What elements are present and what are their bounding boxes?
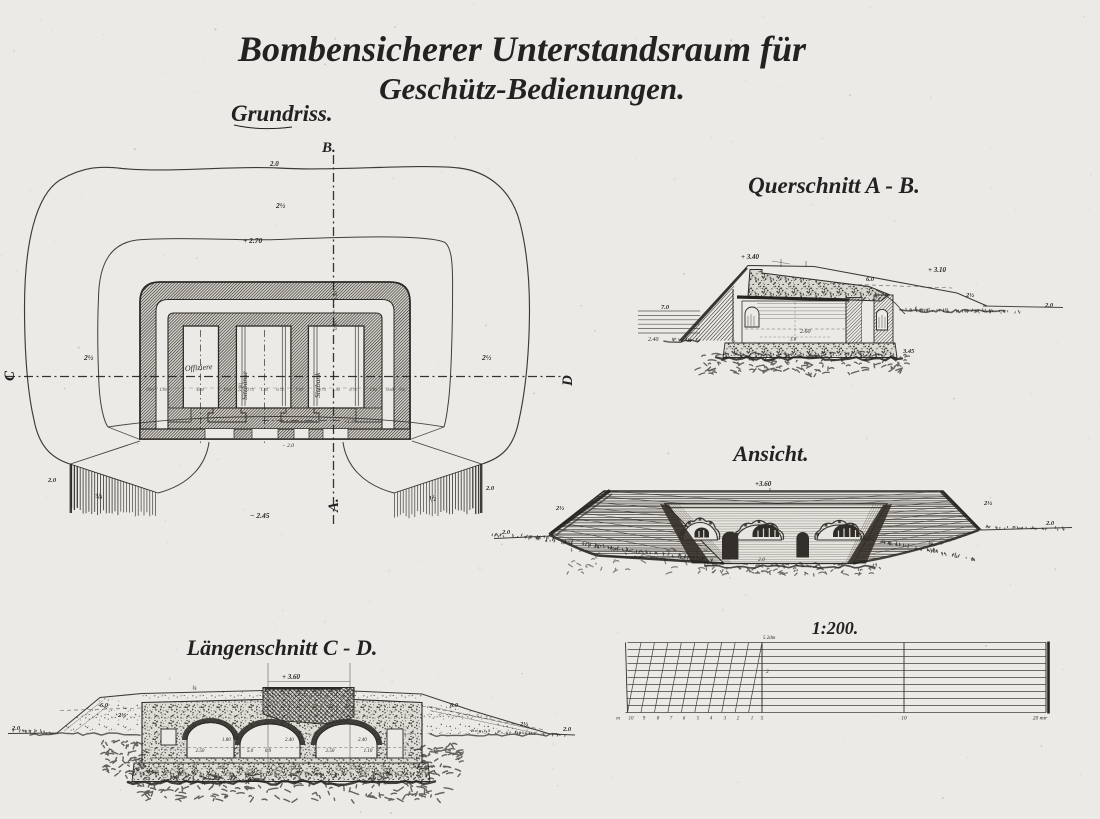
svg-text:1.30: 1.30 [332, 387, 340, 392]
svg-text:2.0: 2.0 [562, 726, 572, 733]
svg-text:2½: 2½ [983, 500, 992, 507]
svg-text:3.0: 3.0 [790, 338, 797, 343]
svg-text:6.0: 6.0 [100, 702, 109, 709]
svg-text:Grundriss.: Grundriss. [231, 101, 333, 126]
svg-text:0.75: 0.75 [246, 387, 253, 392]
svg-text:10: 10 [901, 716, 907, 722]
svg-text:6.0: 6.0 [866, 276, 875, 283]
svg-text:− 2.0: − 2.0 [282, 443, 294, 449]
svg-text:1.50: 1.50 [223, 387, 231, 392]
svg-text:4.00: 4.00 [196, 387, 204, 392]
svg-text:0.6: 0.6 [399, 387, 405, 392]
svg-text:+3.60: +3.60 [755, 480, 772, 488]
svg-text:¾: ¾ [192, 686, 197, 692]
svg-text:2.40: 2.40 [648, 336, 659, 343]
svg-text:0.60: 0.60 [146, 387, 154, 392]
svg-text:2½: 2½ [83, 353, 94, 362]
svg-text:5 2dm: 5 2dm [763, 636, 776, 641]
svg-text:2.40: 2.40 [358, 738, 367, 743]
svg-text:3.00: 3.00 [239, 383, 244, 392]
svg-text:7.0: 7.0 [661, 304, 670, 311]
svg-text:1.30: 1.30 [260, 387, 268, 392]
svg-text:+ 2.70: + 2.70 [243, 236, 263, 245]
svg-text:+1.35: +1.35 [344, 420, 357, 425]
svg-text:Bombensicherer Unterstandsraum: Bombensicherer Unterstandsraum für [237, 29, 807, 69]
svg-text:Geschütz-Bedienungen.: Geschütz-Bedienungen. [379, 71, 685, 106]
svg-text:20 mtr: 20 mtr [1033, 716, 1048, 722]
svg-text:0.60: 0.60 [386, 387, 394, 392]
svg-text:1.80: 1.80 [222, 738, 231, 743]
svg-text:¾: ¾ [928, 540, 933, 547]
svg-text:1.50: 1.50 [159, 387, 167, 392]
svg-text:0.75: 0.75 [276, 387, 283, 392]
svg-text:Ansicht.: Ansicht. [731, 441, 808, 466]
svg-text:m: m [616, 717, 620, 722]
svg-text:2.40: 2.40 [285, 738, 294, 743]
svg-text:1.20: 1.20 [334, 291, 339, 300]
svg-text:2½: 2½ [519, 721, 528, 728]
svg-text:2.0: 2.0 [485, 485, 495, 492]
svg-text:2½: 2½ [965, 292, 974, 299]
svg-text:1.10: 1.10 [364, 749, 373, 754]
svg-text:2.0: 2.0 [1044, 302, 1054, 309]
svg-text:5: 5 [761, 716, 764, 722]
svg-text:+ 3.40: + 3.40 [741, 253, 759, 261]
svg-text:5.0: 5.0 [247, 749, 254, 754]
svg-text:− 2.45: − 2.45 [250, 511, 270, 520]
svg-text:Querschnitt A - B.: Querschnitt A - B. [748, 173, 920, 198]
svg-text:1.50: 1.50 [295, 387, 303, 392]
svg-text:2.0: 2.0 [1045, 520, 1055, 527]
svg-text:A.: A. [326, 498, 342, 513]
svg-text:Längenschnitt C - D.: Längenschnitt C - D. [186, 635, 378, 660]
svg-text:D: D [560, 375, 576, 387]
svg-text:1.50: 1.50 [369, 387, 377, 392]
svg-text:2: 2 [766, 669, 769, 675]
svg-text:B.: B. [321, 140, 336, 156]
svg-text:2½: 2½ [555, 505, 564, 512]
svg-text:+ 3.60: + 3.60 [282, 673, 300, 681]
svg-text:2.60: 2.60 [800, 329, 811, 335]
svg-text:6.0: 6.0 [450, 702, 459, 709]
svg-text:2½: 2½ [481, 353, 492, 362]
svg-text:2.0: 2.0 [269, 160, 279, 168]
svg-text:2.0: 2.0 [47, 477, 57, 484]
svg-text:2.0: 2.0 [501, 529, 511, 536]
svg-text:+ 3.10: + 3.10 [928, 266, 946, 274]
svg-text:10: 10 [629, 717, 635, 722]
svg-text:0.75: 0.75 [318, 387, 325, 392]
svg-text:2.0: 2.0 [758, 557, 765, 563]
svg-text:2.50: 2.50 [326, 749, 335, 754]
svg-text:2½: 2½ [117, 712, 126, 719]
svg-text:0.75: 0.75 [349, 387, 356, 392]
svg-text:3.45: 3.45 [902, 348, 915, 355]
svg-text:¾: ¾ [610, 546, 615, 553]
svg-text:2.0: 2.0 [11, 725, 21, 732]
svg-text:2½: 2½ [275, 201, 286, 210]
svg-text:1: 1 [751, 717, 754, 722]
svg-text:C: C [2, 370, 18, 381]
svg-text:0.80: 0.80 [334, 321, 339, 330]
svg-text:1:200.: 1:200. [812, 618, 859, 638]
svg-text:2.50: 2.50 [196, 749, 205, 754]
